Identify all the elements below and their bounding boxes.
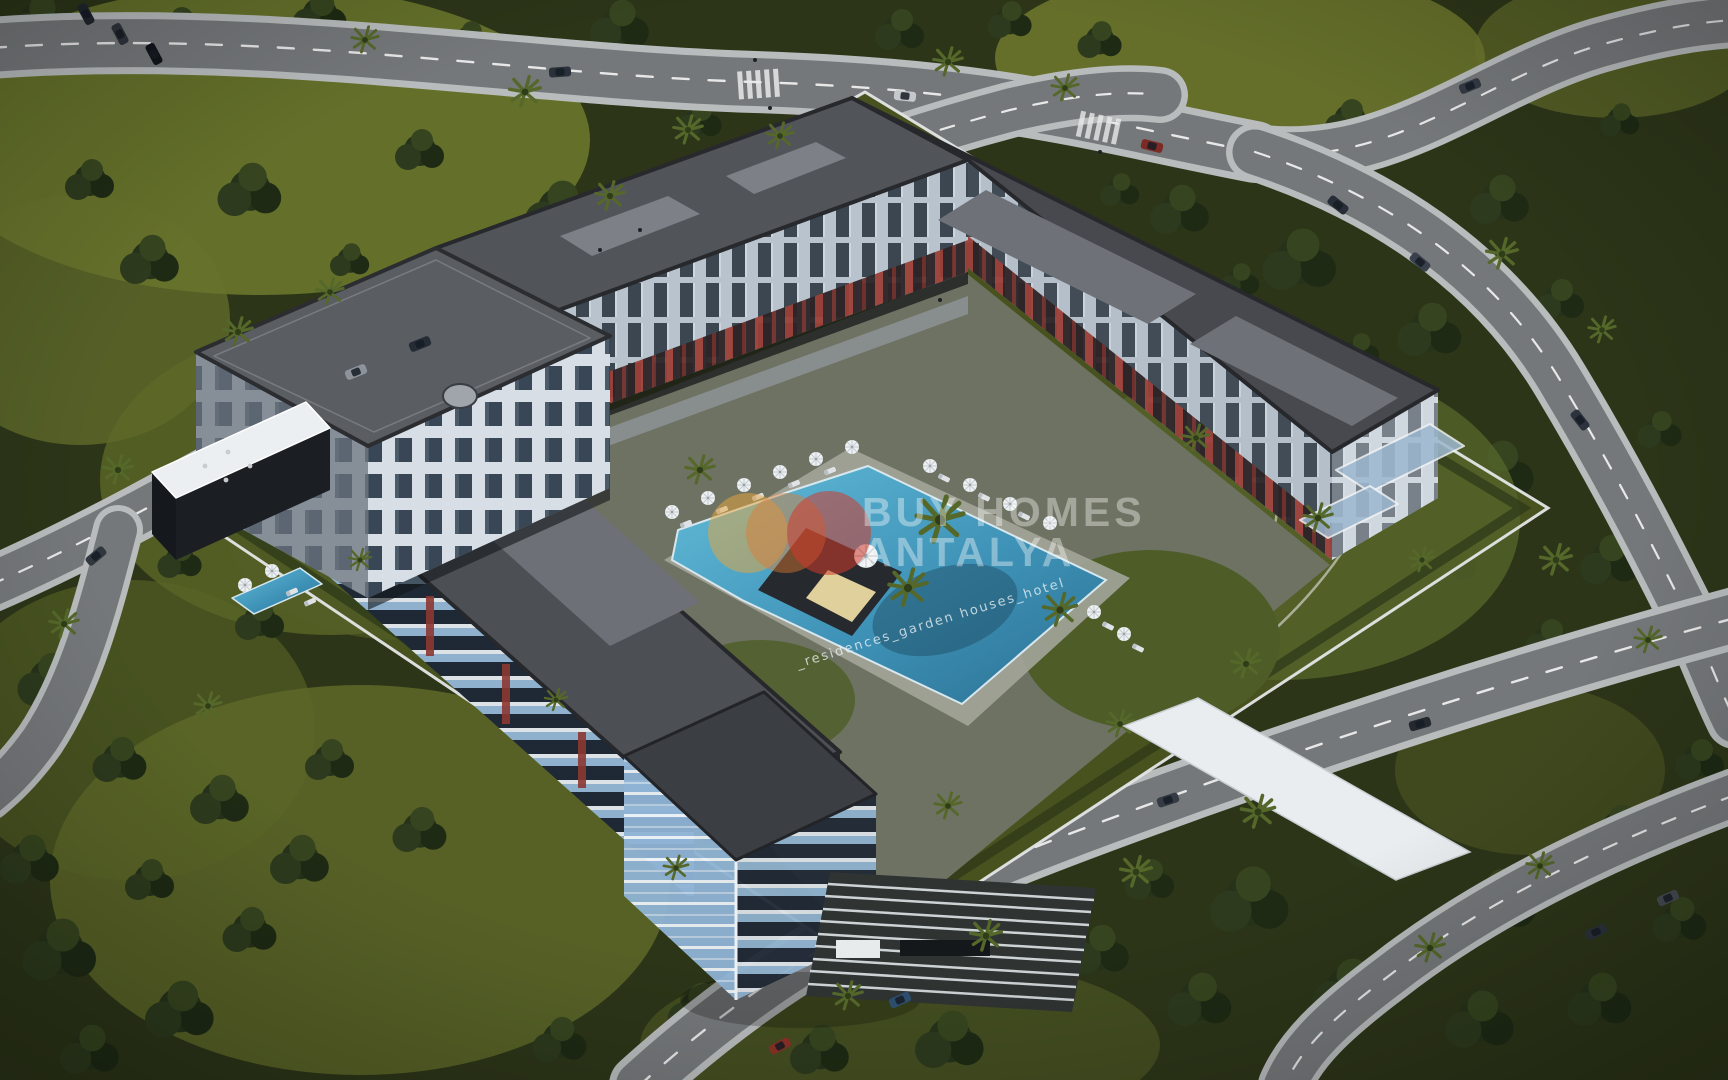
aerial-render-scene: _residences_garden houses_hotel: [0, 0, 1728, 1080]
watermark-text-line2: ANTALYA: [862, 529, 1075, 575]
watermark-logo-circle-red: [787, 491, 871, 575]
render-viewport: _residences_garden houses_hotel: [0, 0, 1728, 1080]
